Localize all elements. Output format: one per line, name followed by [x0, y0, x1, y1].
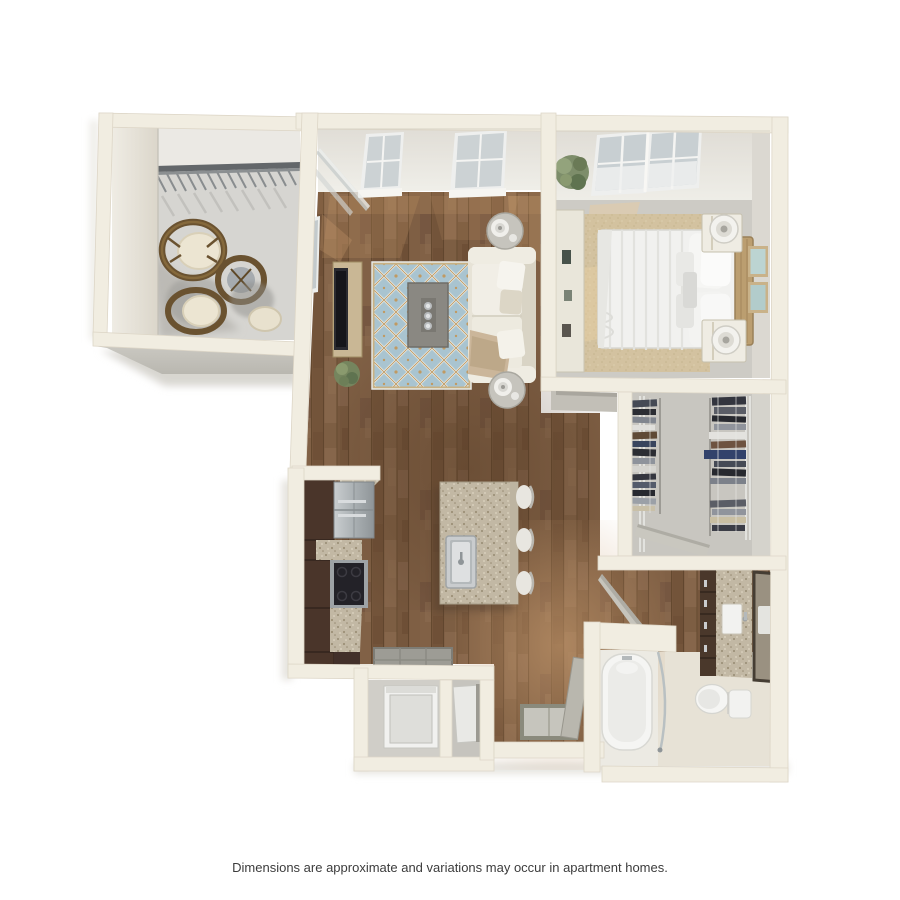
svg-text:Dimensions are approximate and: Dimensions are approximate and variation… — [232, 860, 668, 875]
